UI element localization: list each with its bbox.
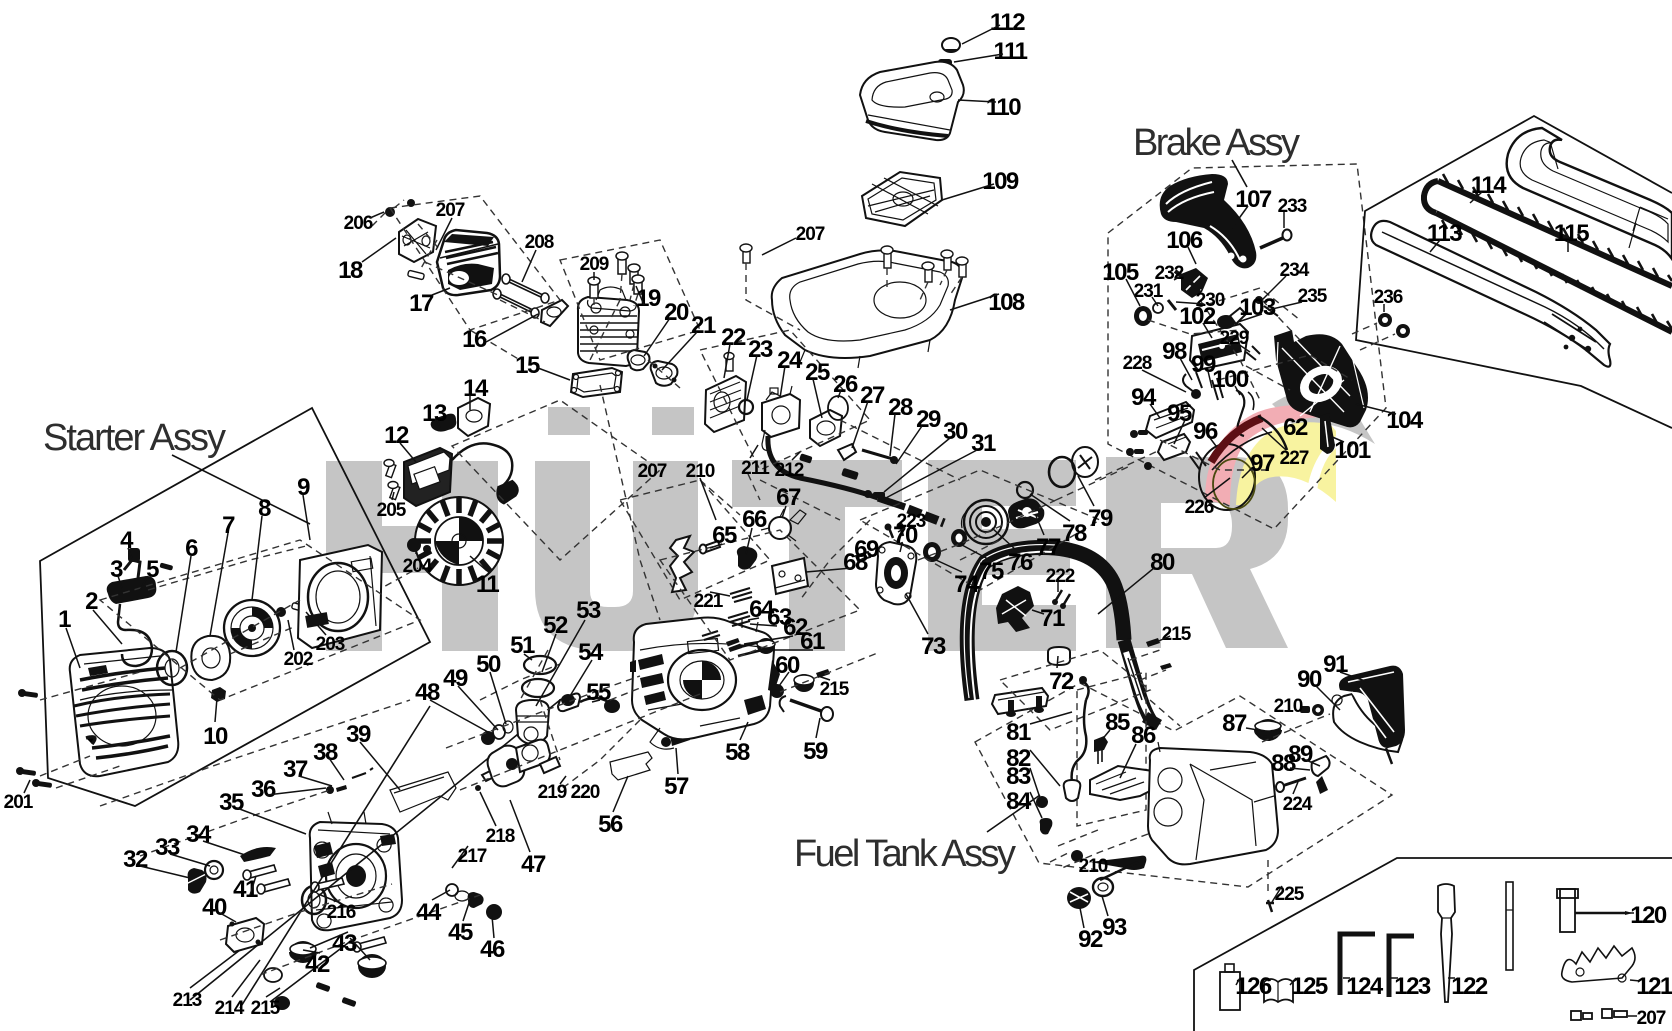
svg-text:227: 227 — [1280, 448, 1309, 469]
svg-text:226: 226 — [1185, 497, 1214, 518]
svg-text:236: 236 — [1374, 287, 1403, 308]
svg-text:26: 26 — [833, 371, 858, 398]
svg-text:228: 228 — [1123, 353, 1152, 374]
svg-text:209: 209 — [580, 254, 609, 275]
svg-text:22: 22 — [721, 324, 746, 351]
svg-text:78: 78 — [1062, 520, 1087, 547]
svg-text:19: 19 — [636, 285, 661, 312]
svg-text:106: 106 — [1166, 227, 1203, 254]
svg-text:25: 25 — [805, 359, 830, 386]
svg-text:27: 27 — [860, 382, 885, 409]
svg-text:210: 210 — [1274, 696, 1303, 717]
svg-text:207: 207 — [1637, 1008, 1666, 1029]
svg-text:33: 33 — [155, 834, 180, 861]
svg-text:31: 31 — [971, 430, 996, 457]
svg-text:76: 76 — [1008, 549, 1033, 576]
svg-text:108: 108 — [988, 289, 1025, 316]
svg-text:6: 6 — [185, 535, 198, 562]
svg-text:220: 220 — [571, 782, 600, 803]
svg-text:206: 206 — [344, 213, 373, 234]
svg-text:13: 13 — [422, 400, 447, 427]
svg-text:46: 46 — [480, 936, 505, 963]
svg-text:98: 98 — [1162, 338, 1187, 365]
svg-text:125: 125 — [1291, 973, 1328, 1000]
svg-text:69: 69 — [854, 536, 879, 563]
svg-text:219: 219 — [538, 782, 567, 803]
svg-text:113: 113 — [1427, 220, 1462, 247]
svg-text:10: 10 — [203, 723, 228, 750]
svg-text:40: 40 — [202, 894, 227, 921]
svg-text:2: 2 — [85, 588, 98, 615]
svg-text:100: 100 — [1212, 366, 1249, 393]
svg-text:120: 120 — [1630, 902, 1667, 929]
svg-text:107: 107 — [1235, 186, 1272, 213]
svg-text:17: 17 — [409, 290, 434, 317]
svg-text:74: 74 — [954, 571, 980, 598]
svg-text:104: 104 — [1386, 407, 1424, 434]
svg-text:214: 214 — [215, 998, 245, 1019]
svg-text:83: 83 — [1006, 763, 1031, 790]
svg-text:215: 215 — [251, 998, 281, 1019]
svg-text:80: 80 — [1150, 549, 1175, 576]
svg-text:71: 71 — [1040, 605, 1065, 632]
svg-text:96: 96 — [1193, 418, 1218, 445]
svg-text:34: 34 — [186, 821, 212, 848]
svg-text:210: 210 — [1079, 856, 1108, 877]
svg-text:111: 111 — [994, 38, 1028, 65]
svg-text:8: 8 — [258, 495, 271, 522]
svg-text:84: 84 — [1006, 788, 1032, 815]
svg-text:81: 81 — [1006, 719, 1031, 746]
svg-text:62: 62 — [1283, 414, 1308, 441]
svg-text:11: 11 — [476, 571, 500, 598]
svg-text:208: 208 — [525, 232, 554, 253]
svg-text:18: 18 — [338, 257, 363, 284]
svg-text:95: 95 — [1167, 400, 1192, 427]
svg-text:122: 122 — [1451, 973, 1488, 1000]
svg-text:15: 15 — [515, 352, 540, 379]
svg-text:24: 24 — [777, 347, 803, 374]
svg-text:89: 89 — [1288, 741, 1313, 768]
svg-text:235: 235 — [1298, 286, 1328, 307]
svg-text:39: 39 — [346, 721, 371, 748]
svg-text:216: 216 — [327, 902, 356, 923]
svg-text:225: 225 — [1275, 884, 1305, 905]
svg-text:231: 231 — [1134, 281, 1164, 302]
svg-text:110: 110 — [986, 94, 1021, 121]
svg-text:201: 201 — [4, 792, 34, 813]
svg-text:57: 57 — [664, 773, 689, 800]
svg-text:36: 36 — [251, 776, 276, 803]
svg-text:222: 222 — [1046, 566, 1075, 587]
svg-text:115: 115 — [1554, 220, 1589, 247]
svg-text:207: 207 — [436, 200, 465, 221]
svg-text:211: 211 — [741, 458, 770, 479]
svg-text:97: 97 — [1250, 450, 1275, 477]
svg-text:5: 5 — [146, 556, 159, 583]
svg-text:45: 45 — [448, 919, 473, 946]
svg-text:67: 67 — [776, 484, 801, 511]
svg-text:14: 14 — [463, 375, 489, 402]
svg-text:223: 223 — [897, 511, 926, 532]
svg-text:7: 7 — [222, 512, 235, 539]
svg-text:16: 16 — [462, 326, 487, 353]
svg-text:124: 124 — [1346, 973, 1384, 1000]
svg-text:114: 114 — [1471, 172, 1507, 199]
svg-text:66: 66 — [742, 506, 767, 533]
svg-text:65: 65 — [712, 522, 737, 549]
svg-text:56: 56 — [598, 811, 623, 838]
svg-text:92: 92 — [1078, 926, 1103, 953]
svg-text:233: 233 — [1278, 196, 1307, 217]
svg-text:77: 77 — [1036, 534, 1061, 561]
svg-text:207: 207 — [638, 461, 667, 482]
svg-text:109: 109 — [982, 168, 1019, 195]
svg-text:215: 215 — [820, 679, 850, 700]
svg-text:230: 230 — [1196, 290, 1225, 311]
svg-text:23: 23 — [748, 336, 773, 363]
svg-text:48: 48 — [415, 679, 440, 706]
svg-text:55: 55 — [586, 679, 611, 706]
svg-text:207: 207 — [796, 224, 825, 245]
svg-text:3: 3 — [110, 556, 123, 583]
svg-text:103: 103 — [1239, 294, 1276, 321]
svg-text:126: 126 — [1235, 973, 1272, 1000]
svg-text:72: 72 — [1049, 668, 1074, 695]
svg-text:42: 42 — [305, 951, 330, 978]
svg-text:Fuel Tank Assy: Fuel Tank Assy — [794, 833, 1019, 875]
svg-text:75: 75 — [979, 558, 1004, 585]
svg-text:204: 204 — [403, 556, 433, 577]
svg-text:79: 79 — [1088, 505, 1113, 532]
svg-text:73: 73 — [921, 633, 946, 660]
svg-text:94: 94 — [1131, 384, 1157, 411]
svg-text:205: 205 — [377, 500, 407, 521]
svg-text:112: 112 — [990, 9, 1025, 36]
svg-text:53: 53 — [576, 597, 601, 624]
svg-text:44: 44 — [416, 899, 442, 926]
svg-text:213: 213 — [173, 990, 202, 1011]
svg-text:50: 50 — [476, 651, 501, 678]
svg-text:229: 229 — [1220, 328, 1249, 349]
svg-text:93: 93 — [1102, 914, 1127, 941]
svg-text:123: 123 — [1394, 973, 1431, 1000]
svg-text:49: 49 — [443, 665, 468, 692]
svg-text:212: 212 — [775, 460, 804, 481]
svg-text:87: 87 — [1222, 710, 1247, 737]
svg-text:Starter Assy: Starter Assy — [43, 417, 229, 459]
svg-text:101: 101 — [1334, 437, 1371, 464]
svg-text:12: 12 — [384, 422, 409, 449]
svg-text:203: 203 — [316, 634, 345, 655]
svg-text:1: 1 — [58, 606, 71, 633]
svg-text:47: 47 — [521, 851, 546, 878]
svg-text:202: 202 — [284, 649, 313, 670]
svg-text:218: 218 — [486, 826, 515, 847]
svg-text:224: 224 — [1283, 794, 1313, 815]
svg-text:38: 38 — [313, 739, 338, 766]
svg-text:37: 37 — [283, 756, 308, 783]
svg-text:51: 51 — [510, 632, 535, 659]
svg-text:Brake Assy: Brake Assy — [1133, 122, 1303, 164]
svg-text:35: 35 — [219, 789, 244, 816]
svg-text:28: 28 — [888, 394, 913, 421]
svg-text:121: 121 — [1636, 973, 1672, 1000]
svg-text:58: 58 — [725, 739, 750, 766]
svg-text:59: 59 — [803, 738, 828, 765]
svg-text:232: 232 — [1155, 263, 1184, 284]
svg-text:32: 32 — [123, 846, 148, 873]
svg-text:217: 217 — [458, 846, 487, 867]
svg-text:215: 215 — [1162, 624, 1192, 645]
